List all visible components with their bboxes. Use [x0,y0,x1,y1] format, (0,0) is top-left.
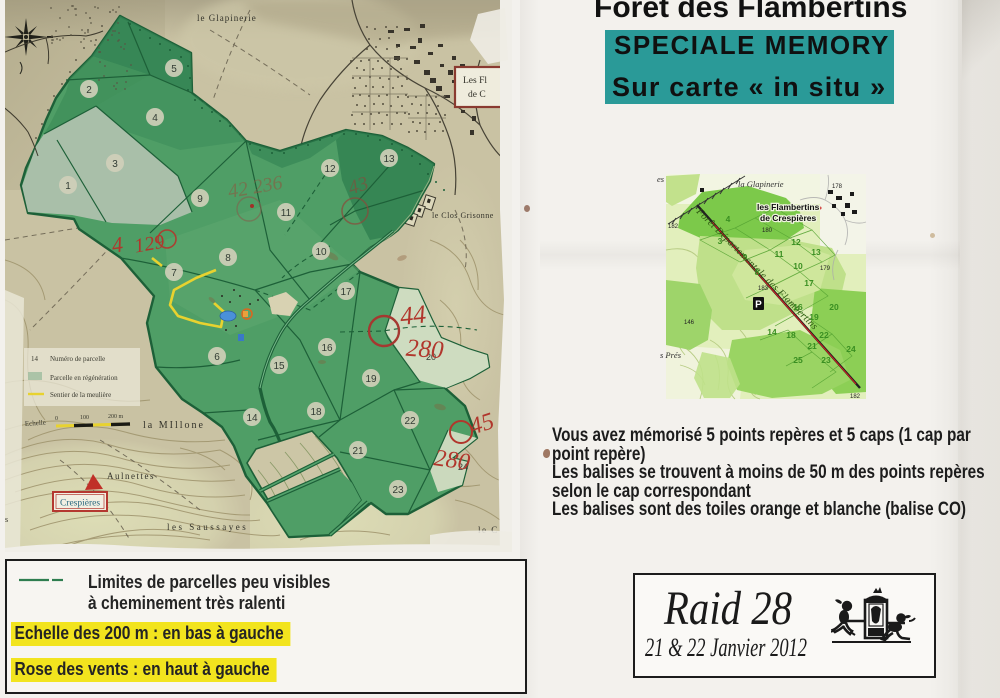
svg-text:182: 182 [668,224,679,230]
svg-text:14: 14 [31,355,39,363]
svg-text:s Prés: s Prés [660,350,682,360]
svg-text:le Glapinerie: le Glapinerie [197,13,257,23]
svg-text:25: 25 [793,355,803,365]
svg-text:17: 17 [804,278,814,288]
svg-text:les Saussayes: les Saussayes [167,522,248,532]
svg-text:10: 10 [793,261,803,271]
svg-text:0: 0 [55,416,58,422]
svg-text:de C: de C [468,90,486,100]
svg-text:2: 2 [86,85,92,96]
svg-text:8: 8 [225,253,231,264]
svg-text:19: 19 [809,312,819,322]
svg-text:13: 13 [811,247,821,257]
svg-text:22: 22 [404,416,416,427]
svg-text:Echelle: Echelle [25,419,47,428]
svg-text:6: 6 [214,352,220,363]
svg-text:3: 3 [718,236,723,246]
svg-text:146: 146 [684,320,695,326]
svg-text:183: 183 [758,286,769,292]
svg-text:Parcelle en régénération: Parcelle en régénération [50,374,118,382]
svg-text:12: 12 [324,164,336,175]
svg-text:11: 11 [775,249,784,259]
svg-text:14: 14 [246,413,258,424]
svg-text:11: 11 [281,208,292,219]
svg-text:280: 280 [432,445,471,476]
svg-text:21: 21 [352,446,364,457]
svg-text:19: 19 [365,374,377,385]
svg-text:44: 44 [399,299,428,331]
svg-text:100: 100 [80,415,89,421]
svg-text:14: 14 [767,327,777,337]
svg-text:la Glapinerie: la Glapinerie [738,179,784,189]
svg-text:Les Fl: Les Fl [463,76,487,86]
svg-text:P: P [755,300,762,311]
svg-text:23: 23 [821,355,831,365]
svg-text:179: 179 [820,266,831,272]
svg-text:3: 3 [112,159,118,170]
svg-text:280: 280 [405,335,445,365]
svg-text:16: 16 [793,302,803,312]
svg-text:18: 18 [786,330,796,340]
svg-text:180: 180 [762,228,773,234]
svg-text:de Crespières: de Crespières [760,213,816,223]
svg-text:4: 4 [726,214,731,224]
svg-text:21: 21 [807,341,817,351]
svg-text:182: 182 [850,394,861,400]
svg-text:9: 9 [743,252,748,262]
svg-text:Sentier de la meulière: Sentier de la meulière [50,391,111,399]
svg-text:178: 178 [832,184,843,190]
svg-text:12: 12 [791,237,801,247]
svg-text:1: 1 [65,181,71,192]
svg-text:23: 23 [392,485,404,496]
svg-text:17: 17 [340,287,352,298]
svg-text:es: es [657,174,665,184]
svg-text:4: 4 [152,113,158,124]
svg-text:s: s [5,515,8,524]
svg-text:les Flambertins: les Flambertins [757,202,820,212]
svg-text:Crespières: Crespières [60,499,100,509]
svg-text:16: 16 [321,343,333,354]
svg-text:10: 10 [315,247,327,258]
svg-text:Numéro de parcelle: Numéro de parcelle [50,355,105,363]
svg-text:20: 20 [829,302,839,312]
svg-text:9: 9 [197,194,203,205]
svg-text:13: 13 [383,154,395,165]
svg-text:24: 24 [846,344,856,354]
svg-text:Aulnettes: Aulnettes [107,471,155,481]
svg-text:la MIllone: la MIllone [143,420,205,431]
svg-text:7: 7 [171,268,177,279]
svg-text:18: 18 [310,407,322,418]
svg-text:15: 15 [273,361,285,372]
svg-text:200 m: 200 m [108,414,124,420]
svg-text:22: 22 [819,330,829,340]
svg-text:8: 8 [755,267,760,277]
svg-text:5: 5 [171,64,177,75]
svg-text:le Clos Grisonne: le Clos Grisonne [432,211,494,220]
